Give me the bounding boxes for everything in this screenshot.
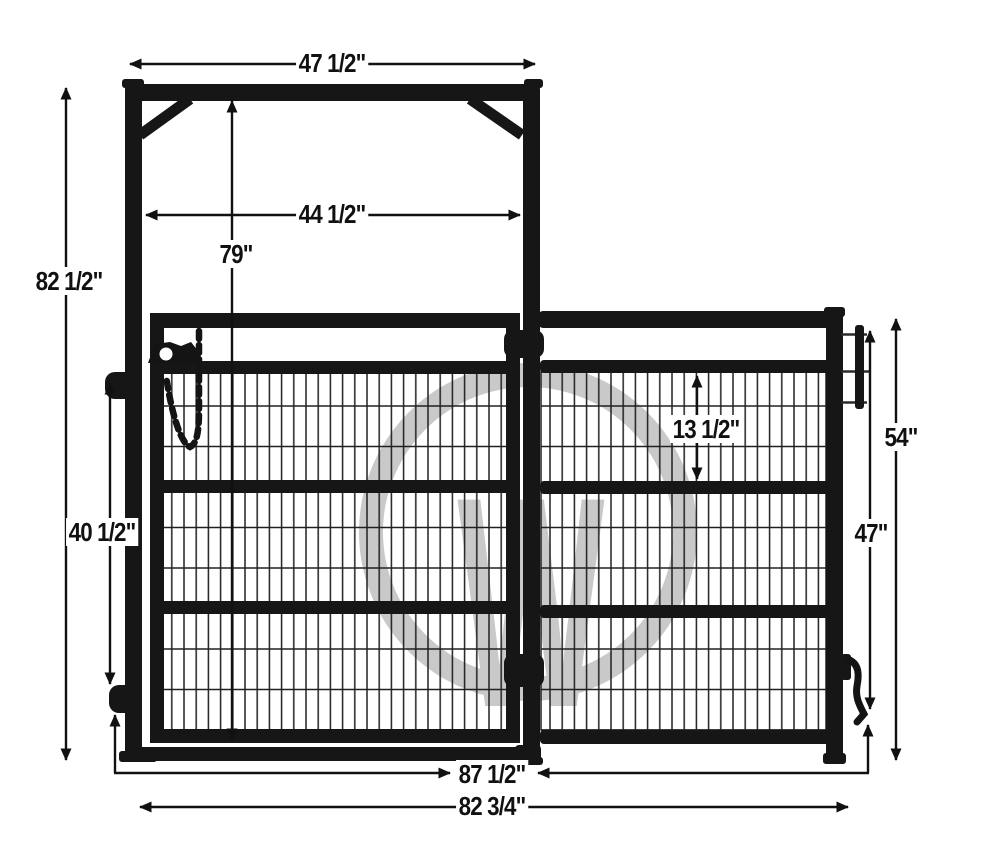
dimension-label-panel-height: 54" xyxy=(882,423,920,451)
gate-rail-4 xyxy=(150,601,520,614)
panel-lever-handle xyxy=(841,654,864,722)
panel-top-rail xyxy=(538,311,838,328)
dimension-label-overall-width-b: 82 3/4" xyxy=(456,792,528,820)
panel-right-foot xyxy=(823,753,846,764)
gate-top-rail xyxy=(150,313,520,328)
frame-left-corner-brace xyxy=(140,99,190,135)
gate-rail-2 xyxy=(150,361,520,374)
frame-right-corner-brace xyxy=(470,99,522,135)
dimension-label-panel-frame-height: 47" xyxy=(852,519,890,547)
dimension-label-latch-spacing: 40 1/2" xyxy=(66,518,138,546)
gate-upper-hinge xyxy=(504,330,544,358)
dimension-label-overall-width-a: 87 1/2" xyxy=(456,760,528,788)
dimension-label-opening-width: 44 1/2" xyxy=(296,200,368,228)
frame-left-foot xyxy=(119,751,157,762)
panel-rail-4 xyxy=(540,605,830,618)
dimension-label-panel-top-section: 13 1/2" xyxy=(670,415,742,443)
gate-wire-mesh xyxy=(163,372,507,730)
gate-panel-diagram: W xyxy=(0,0,1000,841)
panel-bottom-rail xyxy=(540,730,830,744)
dimension-label-frame-height: 82 1/2" xyxy=(33,267,105,295)
gate-rail-3 xyxy=(150,480,520,493)
latch-bracket-lower xyxy=(109,685,140,713)
gate-bottom-rail xyxy=(150,729,520,743)
panel-connector-bracket xyxy=(841,325,869,409)
gate-lower-hinge xyxy=(504,654,544,687)
dimension-label-opening-height: 79" xyxy=(217,240,255,268)
latch-plate xyxy=(148,342,198,363)
panel-rail-2 xyxy=(540,360,830,373)
dimension-label-frame-width: 47 1/2" xyxy=(296,49,368,77)
gate-left-stile xyxy=(150,313,164,743)
diagram-canvas: W xyxy=(0,0,1000,841)
bracket-bar xyxy=(855,325,864,409)
panel-rail-3 xyxy=(540,481,830,494)
panel-right-post xyxy=(826,311,843,763)
latch-plate-hole xyxy=(160,348,173,361)
frame-left-post xyxy=(125,84,142,761)
